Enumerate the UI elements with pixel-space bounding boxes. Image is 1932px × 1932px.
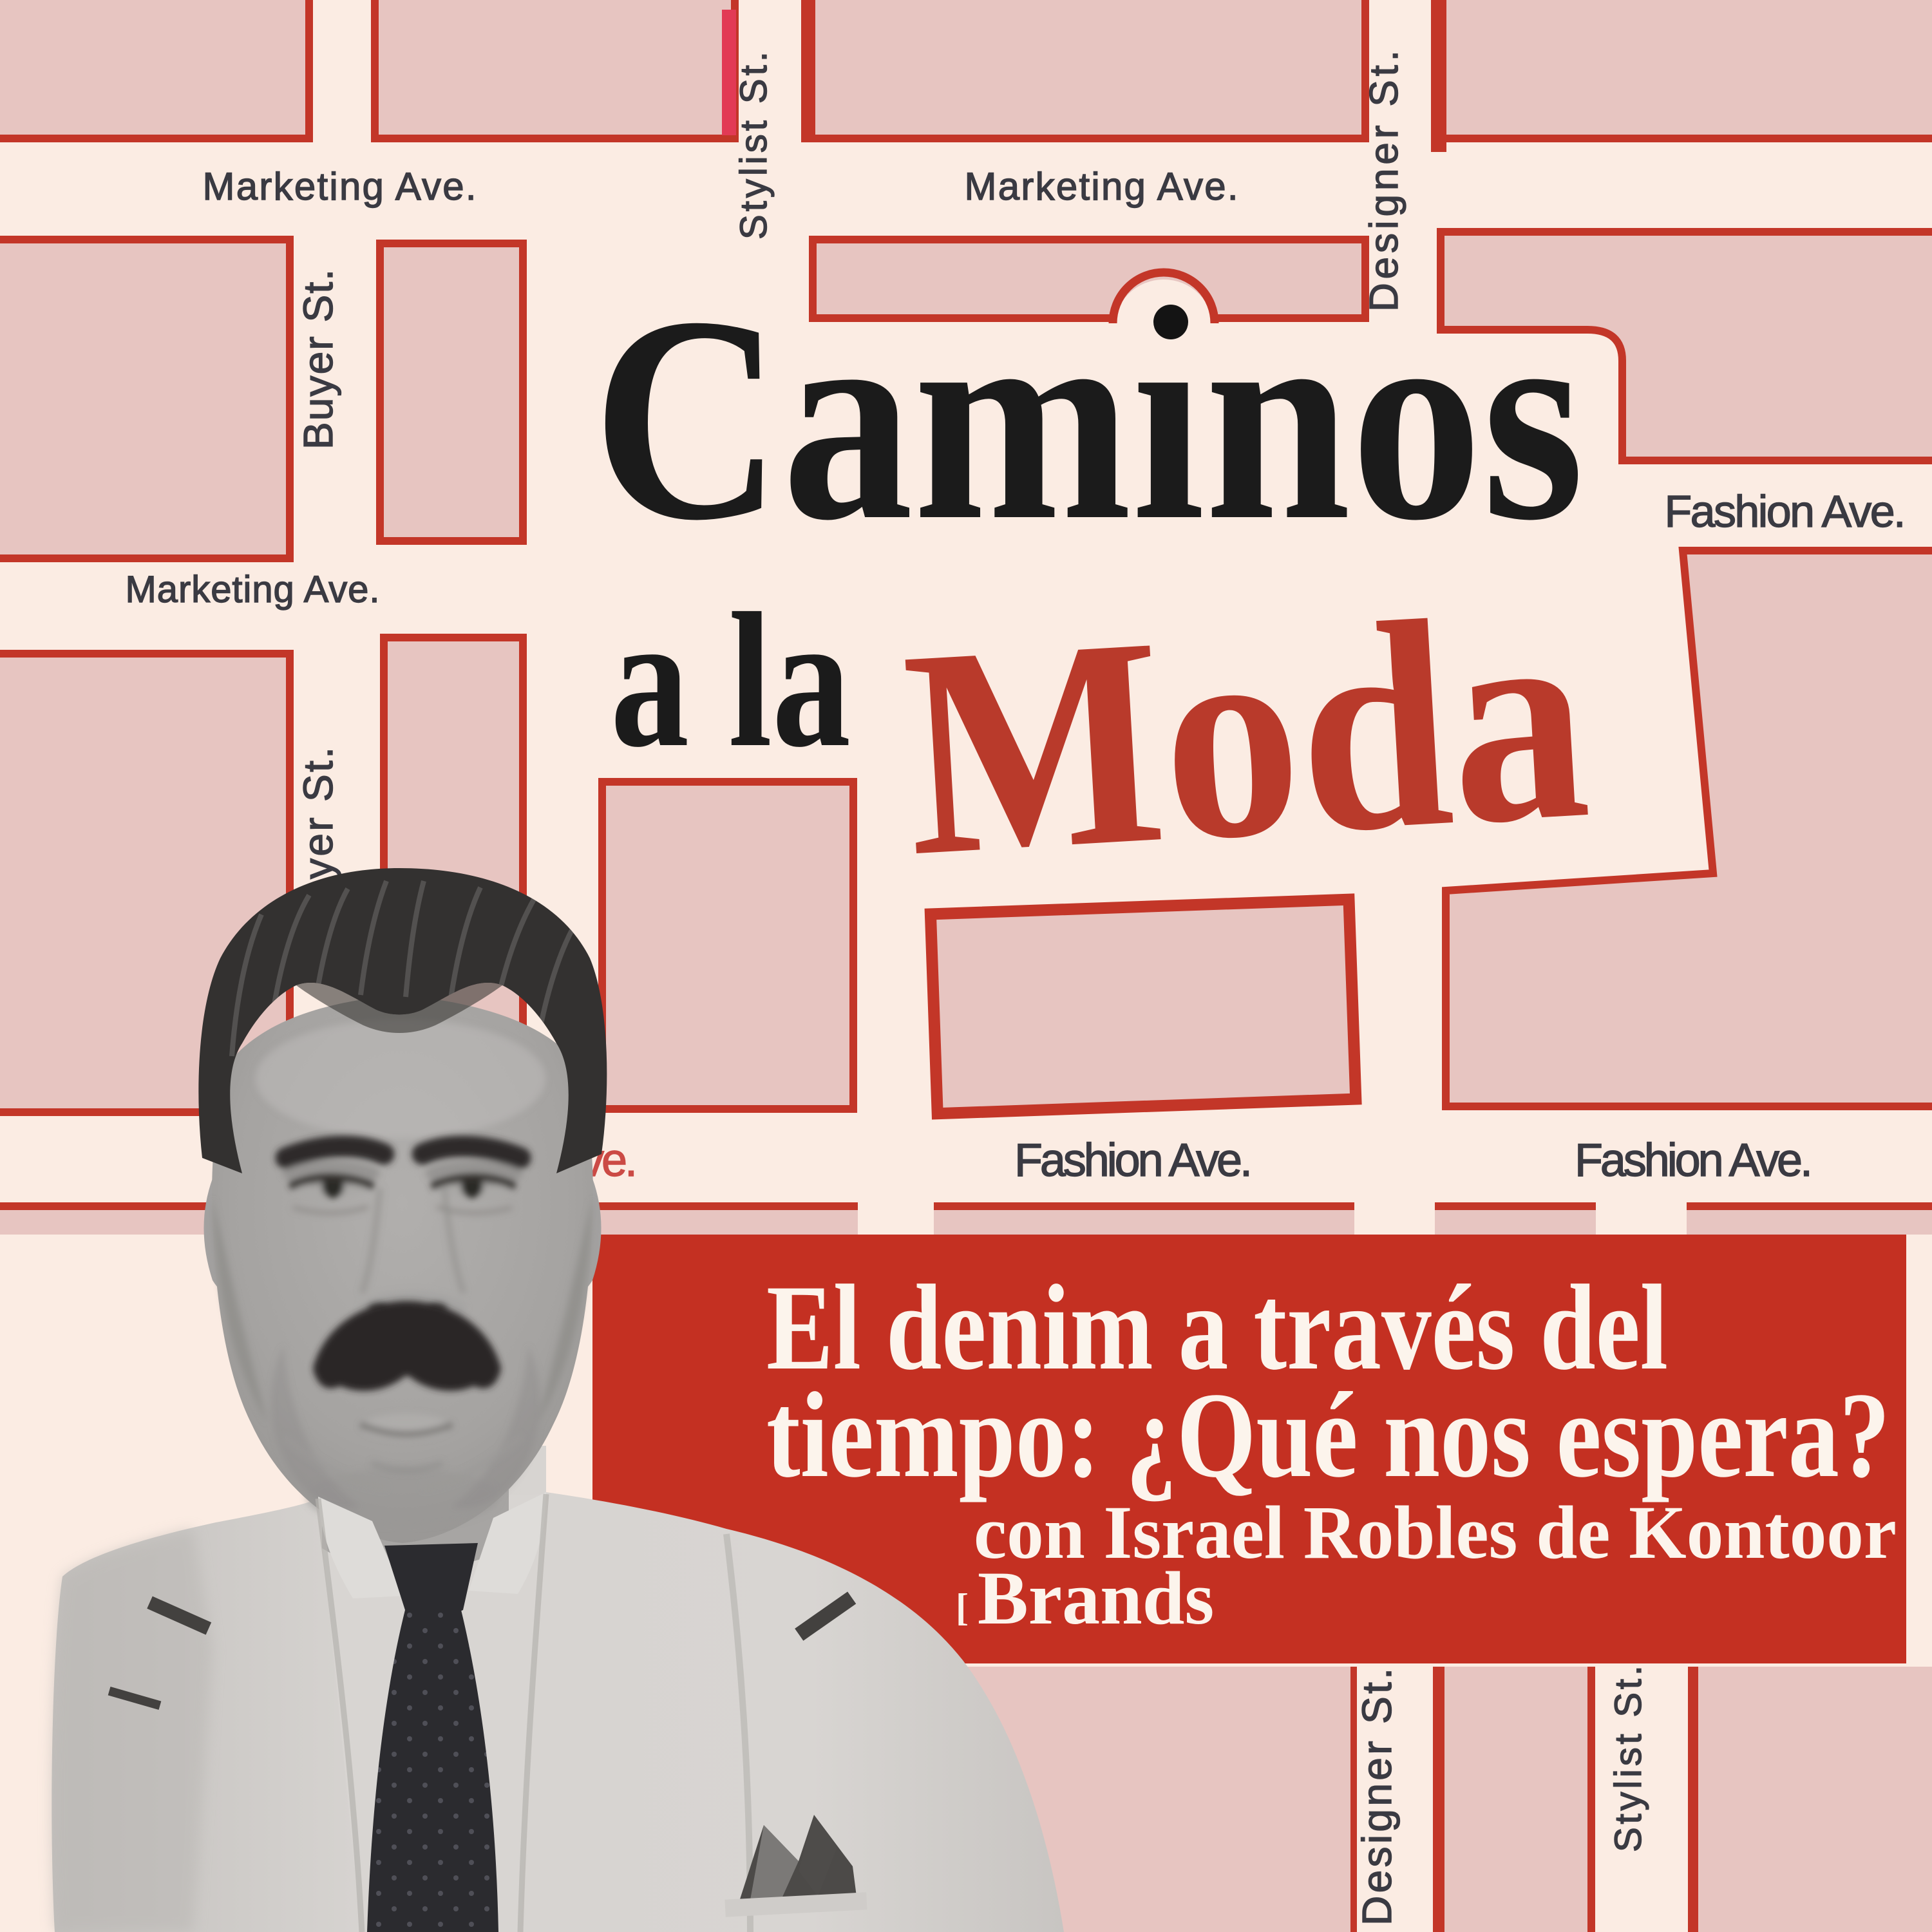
svg-text:tiempo: ¿Qué nos espera?: tiempo: ¿Qué nos espera? (766, 1368, 1890, 1503)
svg-text:a la: a la (611, 573, 851, 787)
svg-text:Marketing Ave.: Marketing Ave. (203, 165, 477, 208)
svg-text:Stylist St.: Stylist St. (733, 52, 775, 240)
svg-text:Marketing Ave.: Marketing Ave. (126, 569, 380, 611)
svg-text:Camınos: Camınos (592, 257, 1584, 581)
svg-text:Brands: Brands (978, 1556, 1214, 1640)
svg-text:Marketing Ave.: Marketing Ave. (965, 165, 1238, 208)
svg-text:Stylist St.: Stylist St. (1607, 1665, 1649, 1852)
svg-text:Fashion Ave.: Fashion Ave. (1575, 1135, 1813, 1186)
svg-text:Designer St.: Designer St. (1354, 1668, 1400, 1926)
svg-text:Buyer St.: Buyer St. (295, 269, 341, 450)
svg-text:[: [ (956, 1586, 969, 1629)
svg-text:Moda: Moda (896, 551, 1596, 918)
svg-text:Fashion Ave.: Fashion Ave. (1665, 486, 1906, 536)
svg-text:Fashion Ave.: Fashion Ave. (1014, 1135, 1253, 1186)
